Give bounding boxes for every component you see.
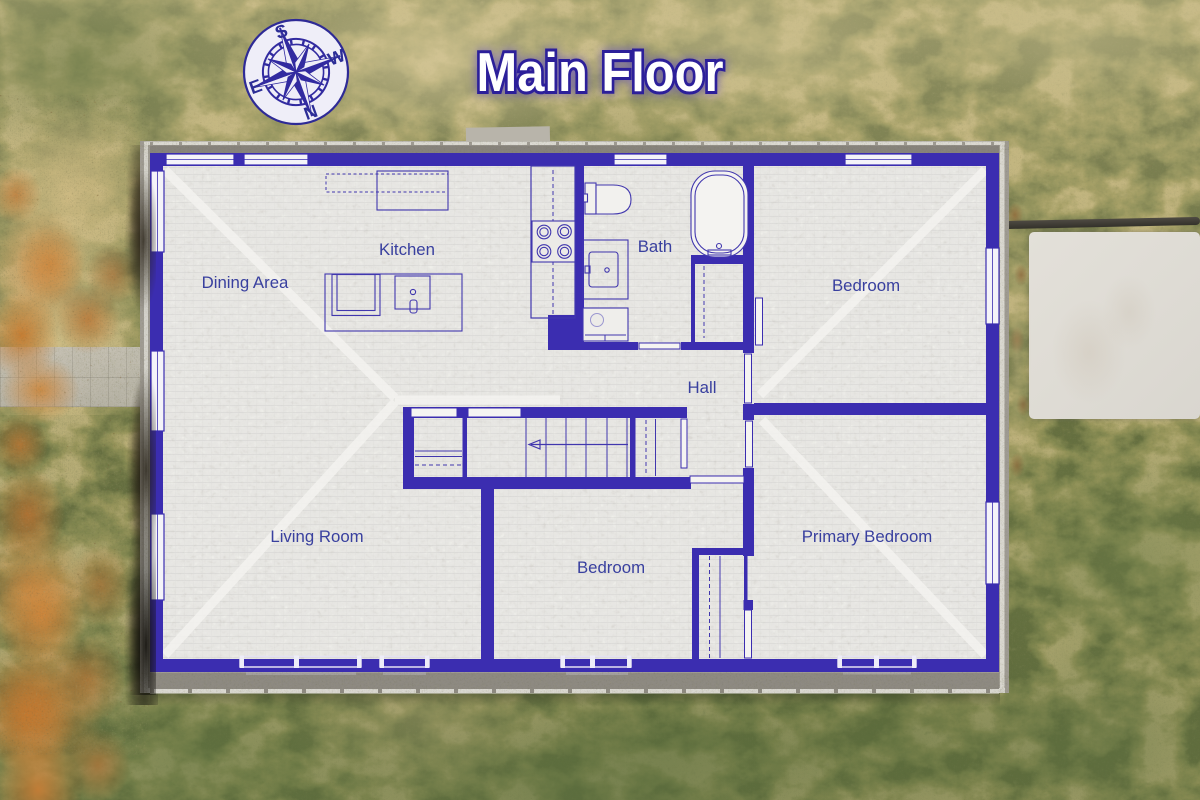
svg-text:Dining Area: Dining Area	[202, 273, 289, 292]
svg-text:Bedroom: Bedroom	[577, 558, 645, 577]
svg-text:Hall: Hall	[688, 378, 717, 397]
svg-text:Primary Bedroom: Primary Bedroom	[802, 527, 933, 546]
svg-text:Main Floor: Main Floor	[477, 41, 724, 103]
svg-text:Living Room: Living Room	[270, 527, 363, 546]
svg-text:Bedroom: Bedroom	[832, 276, 900, 295]
svg-text:Kitchen: Kitchen	[379, 240, 435, 259]
svg-text:Bath: Bath	[638, 237, 673, 256]
